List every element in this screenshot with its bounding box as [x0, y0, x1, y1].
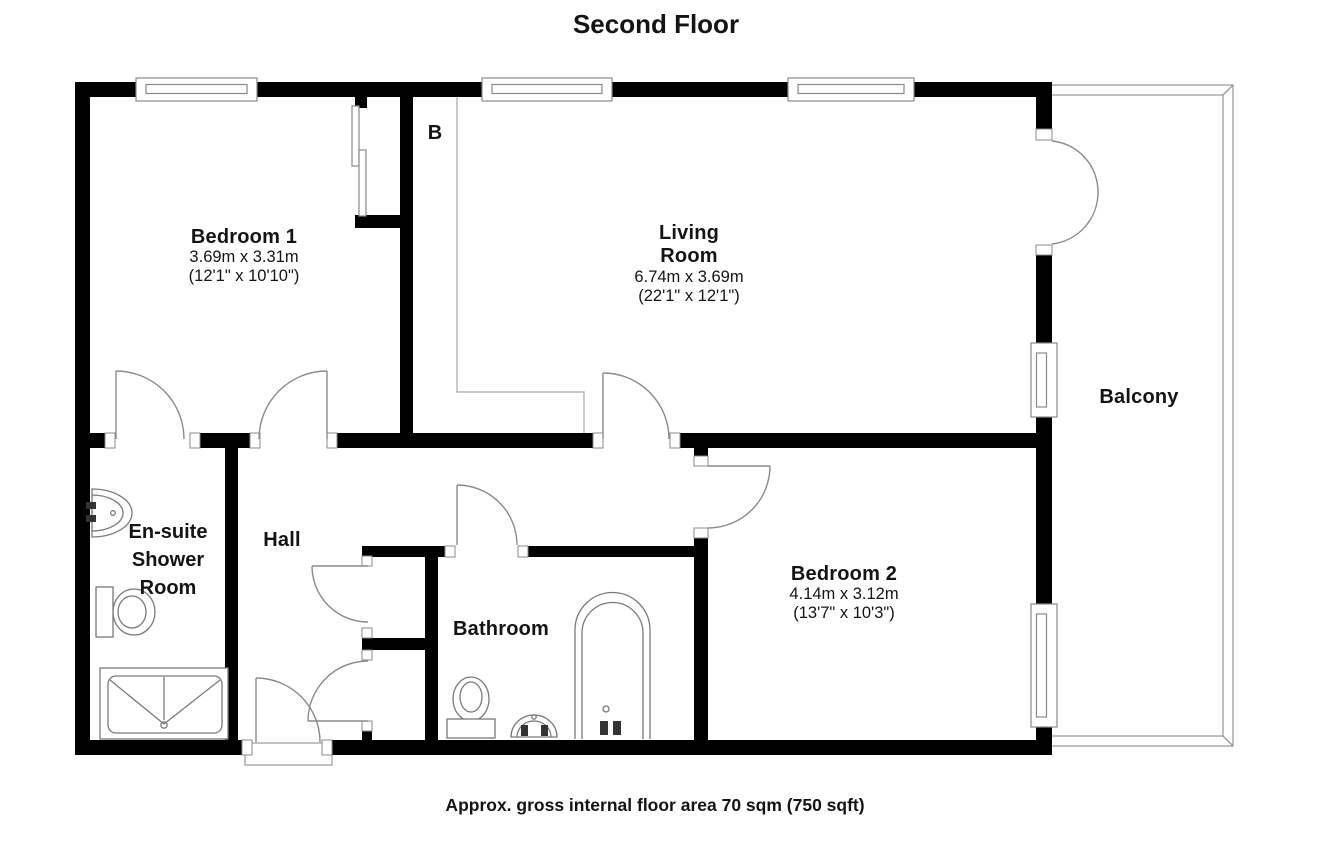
bathtub	[575, 593, 650, 739]
bedroom2-side-window	[1031, 604, 1057, 727]
hall-label: Hall	[263, 529, 300, 551]
bathroom-sink	[511, 715, 557, 737]
balcony-french-doors	[1052, 141, 1098, 244]
ensuite-line1: En-suite	[129, 518, 208, 546]
area-division-line	[457, 97, 584, 433]
front-door-threshold	[245, 743, 332, 765]
floorplan-page: Second Floor Bedroom 1 3.69m x 3.31m (12…	[0, 0, 1323, 844]
bedroom1-metric: 3.69m x 3.31m	[189, 248, 300, 267]
living-room-side-window	[1031, 343, 1057, 417]
plan-title: Second Floor	[573, 9, 739, 40]
living-room-name-line2: Room	[634, 245, 743, 268]
ensuite-sink	[86, 489, 132, 537]
living-room-window-left	[482, 78, 612, 101]
shower-tray	[100, 668, 228, 739]
living-room-window-right	[788, 78, 914, 101]
ensuite-line3: Room	[129, 574, 208, 602]
ensuite-line2: Shower	[129, 546, 208, 574]
bedroom2-name: Bedroom 2	[789, 563, 898, 585]
bedroom1-label: Bedroom 1 3.69m x 3.31m (12'1" x 10'10")	[189, 226, 300, 286]
balcony-label: Balcony	[1099, 386, 1178, 408]
boiler-cupboard-label: B	[428, 122, 442, 145]
bedroom1-door	[259, 371, 327, 439]
area-footer: Approx. gross internal floor area 70 sqm…	[445, 795, 864, 816]
hall-cupboard-door-bottom	[308, 661, 368, 721]
ensuite-door	[116, 371, 184, 439]
bathroom-fixtures	[447, 593, 650, 739]
exterior-walls	[75, 82, 1052, 755]
bedroom2-metric: 4.14m x 3.12m	[789, 585, 898, 604]
bathroom-toilet	[447, 677, 495, 738]
balcony-outline	[1052, 85, 1233, 746]
floorplan-drawing	[0, 0, 1323, 844]
bathroom-label: Bathroom	[453, 618, 549, 640]
interior-walls	[90, 97, 1036, 740]
bedroom2-label: Bedroom 2 4.14m x 3.12m (13'7" x 10'3")	[789, 563, 898, 623]
bedroom1-window	[136, 78, 257, 101]
ensuite-label: En-suite Shower Room	[129, 518, 208, 602]
bedroom2-imperial: (13'7" x 10'3")	[789, 604, 898, 623]
bedroom1-imperial: (12'1" x 10'10")	[189, 267, 300, 286]
living-room-name-line1: Living	[634, 222, 743, 245]
living-room-label: Living Room 6.74m x 3.69m (22'1" x 12'1"…	[634, 222, 743, 306]
front-door	[256, 678, 320, 742]
bedroom2-door	[708, 466, 770, 528]
living-room-metric: 6.74m x 3.69m	[634, 268, 743, 287]
living-room-door	[603, 373, 669, 439]
wardrobe-sliding-doors	[352, 106, 366, 216]
living-room-imperial: (22'1" x 12'1")	[634, 287, 743, 306]
bathroom-door	[457, 485, 517, 545]
hall-cupboard-door-top	[312, 566, 368, 622]
bedroom1-name: Bedroom 1	[189, 226, 300, 248]
